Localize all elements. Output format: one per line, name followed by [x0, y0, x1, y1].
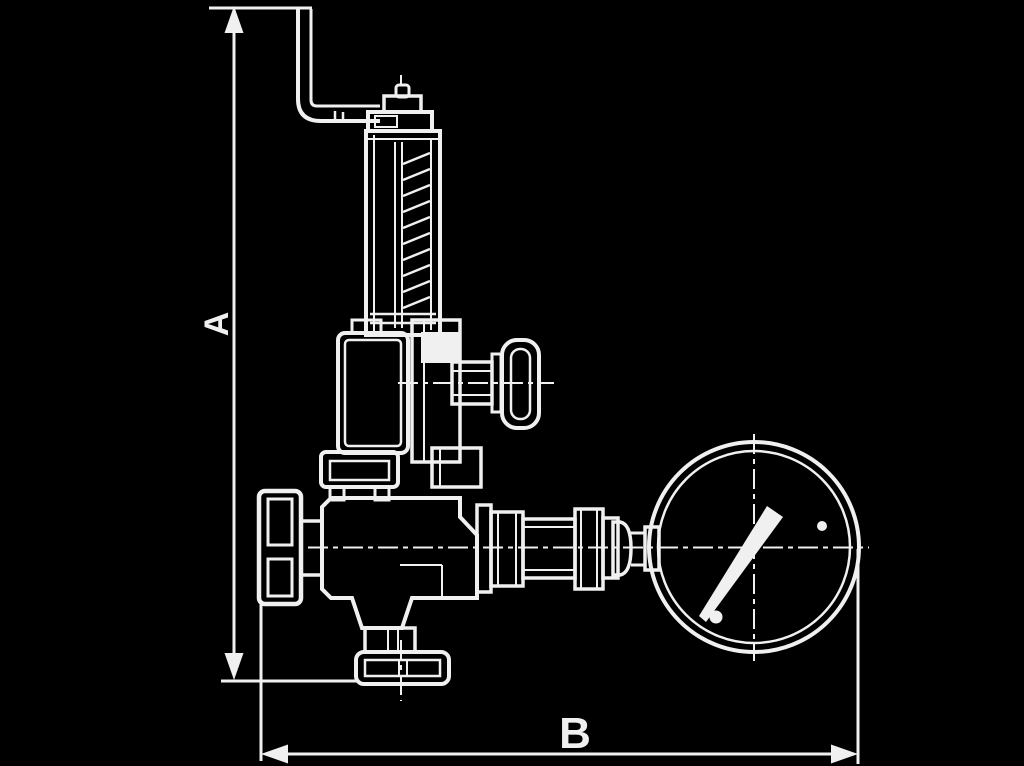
- dimension-b: B: [261, 549, 858, 764]
- bottom-drain: [356, 628, 449, 701]
- arrowhead-right: [831, 745, 858, 764]
- bonnet-outer: [338, 333, 408, 453]
- drain-cap-outer: [356, 652, 449, 684]
- gauge-pin-upper: [817, 521, 827, 531]
- drain-cap-inner: [365, 660, 440, 676]
- valve-dimensional-drawing: A B: [0, 0, 1024, 766]
- train-nut-2-inner: [581, 509, 597, 589]
- mounting-bracket: [298, 9, 380, 121]
- arrowhead-up: [225, 6, 244, 33]
- train-nut-1-inner: [498, 512, 516, 586]
- train-nut-1: [491, 512, 523, 586]
- bonnet: [338, 320, 408, 453]
- dimension-label-a: A: [198, 312, 236, 337]
- drain-neck-inner-lines: [388, 628, 398, 652]
- gauge-pin-lower: [710, 611, 723, 624]
- bracket-weld-marks: [335, 111, 343, 120]
- inlet-cap-window-top: [268, 499, 292, 545]
- union-nut-outer: [321, 452, 398, 487]
- arrowhead-left: [261, 745, 288, 764]
- union-nut-inner: [330, 461, 389, 480]
- body-top-right-block: [432, 448, 481, 487]
- channel-solid-block: [421, 332, 460, 363]
- bonnet-inner: [345, 340, 401, 446]
- union-nut: [321, 452, 398, 500]
- spring-housing: [366, 131, 440, 335]
- arrowhead-down: [225, 653, 244, 680]
- inlet-cap-outer: [259, 491, 301, 604]
- valve-body: [322, 498, 477, 628]
- gauge-needle: [699, 506, 783, 622]
- drain-neck: [365, 628, 415, 652]
- train-nut-2: [575, 509, 603, 589]
- body-outline: [322, 498, 477, 628]
- spring-coil: [403, 153, 430, 308]
- dimension-label-b: B: [559, 709, 591, 758]
- body-inner-lines: [400, 565, 442, 598]
- inlet-cap-window-bottom: [268, 559, 292, 596]
- drawing-canvas: A B: [0, 0, 1024, 766]
- bracket-inner-wall: [311, 9, 380, 106]
